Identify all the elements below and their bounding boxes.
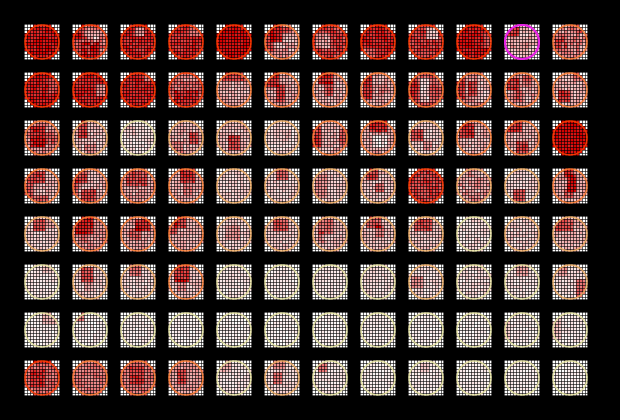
- heatmap-figure: [0, 0, 620, 420]
- tile-r2-c9: [408, 72, 444, 108]
- tile-r8-c11: [504, 360, 540, 396]
- tile-r1-c12: [552, 24, 588, 60]
- tile-r5-c7: [312, 216, 348, 252]
- tile-r4-c5: [216, 168, 252, 204]
- tile-r4-c6: [264, 168, 300, 204]
- tile-r4-c9: [408, 168, 444, 204]
- tile-r6-c11: [504, 264, 540, 300]
- tile-r6-c7: [312, 264, 348, 300]
- tile-r2-c12: [552, 72, 588, 108]
- tile-r8-c9: [408, 360, 444, 396]
- tile-r2-c7: [312, 72, 348, 108]
- tile-r3-c5: [216, 120, 252, 156]
- tile-r2-c5: [216, 72, 252, 108]
- tile-r6-c5: [216, 264, 252, 300]
- tile-r7-c2: [72, 312, 108, 348]
- tile-r5-c3: [120, 216, 156, 252]
- tile-r1-c1: [24, 24, 60, 60]
- tile-r4-c7: [312, 168, 348, 204]
- tile-r3-c4: [168, 120, 204, 156]
- tile-r4-c8: [360, 168, 396, 204]
- tile-r8-c1: [24, 360, 60, 396]
- tile-r3-c2: [72, 120, 108, 156]
- tile-r3-c10: [456, 120, 492, 156]
- tile-r8-c7: [312, 360, 348, 396]
- tile-r5-c11: [504, 216, 540, 252]
- tile-r2-c1: [24, 72, 60, 108]
- tile-r5-c10: [456, 216, 492, 252]
- tile-r1-c8: [360, 24, 396, 60]
- tile-r4-c12: [552, 168, 588, 204]
- highlighted-tile-r1-c11: [504, 24, 540, 60]
- tile-r7-c10: [456, 312, 492, 348]
- tile-r7-c4: [168, 312, 204, 348]
- tile-r7-c1: [24, 312, 60, 348]
- tile-r2-c3: [120, 72, 156, 108]
- tile-r6-c10: [456, 264, 492, 300]
- tile-r4-c4: [168, 168, 204, 204]
- tile-r3-c11: [504, 120, 540, 156]
- tile-r5-c2: [72, 216, 108, 252]
- tile-r2-c6: [264, 72, 300, 108]
- tile-r3-c8: [360, 120, 396, 156]
- tile-r3-c9: [408, 120, 444, 156]
- tile-r8-c5: [216, 360, 252, 396]
- tile-r8-c6: [264, 360, 300, 396]
- tile-r1-c9: [408, 24, 444, 60]
- tile-r8-c12: [552, 360, 588, 396]
- tile-r6-c4: [168, 264, 204, 300]
- tile-r1-c6: [264, 24, 300, 60]
- tile-r7-c8: [360, 312, 396, 348]
- tile-r1-c10: [456, 24, 492, 60]
- tile-r2-c10: [456, 72, 492, 108]
- tile-r5-c4: [168, 216, 204, 252]
- tile-r8-c10: [456, 360, 492, 396]
- tile-r1-c3: [120, 24, 156, 60]
- tile-r1-c5: [216, 24, 252, 60]
- tile-r6-c2: [72, 264, 108, 300]
- tile-r2-c4: [168, 72, 204, 108]
- tile-r4-c1: [24, 168, 60, 204]
- tile-r6-c3: [120, 264, 156, 300]
- tile-r5-c9: [408, 216, 444, 252]
- tile-r3-c3: [120, 120, 156, 156]
- tile-r2-c11: [504, 72, 540, 108]
- tile-r8-c2: [72, 360, 108, 396]
- tile-r7-c6: [264, 312, 300, 348]
- tile-r3-c7: [312, 120, 348, 156]
- tile-r6-c1: [24, 264, 60, 300]
- tile-r6-c8: [360, 264, 396, 300]
- tile-r5-c6: [264, 216, 300, 252]
- tile-r7-c12: [552, 312, 588, 348]
- tile-r5-c1: [24, 216, 60, 252]
- tile-r7-c9: [408, 312, 444, 348]
- tile-r6-c12: [552, 264, 588, 300]
- tile-r8-c4: [168, 360, 204, 396]
- tile-r4-c10: [456, 168, 492, 204]
- tile-r2-c2: [72, 72, 108, 108]
- tile-r4-c11: [504, 168, 540, 204]
- tile-r1-c2: [72, 24, 108, 60]
- tile-r1-c4: [168, 24, 204, 60]
- tile-r2-c8: [360, 72, 396, 108]
- tile-r8-c8: [360, 360, 396, 396]
- tile-r5-c12: [552, 216, 588, 252]
- tile-r4-c3: [120, 168, 156, 204]
- tile-r6-c9: [408, 264, 444, 300]
- tile-r7-c7: [312, 312, 348, 348]
- tile-r3-c6: [264, 120, 300, 156]
- tile-r7-c5: [216, 312, 252, 348]
- tile-r7-c3: [120, 312, 156, 348]
- tile-r5-c8: [360, 216, 396, 252]
- tile-r3-c1: [24, 120, 60, 156]
- tile-r6-c6: [264, 264, 300, 300]
- tile-r5-c5: [216, 216, 252, 252]
- tile-r8-c3: [120, 360, 156, 396]
- tile-r3-c12: [552, 120, 588, 156]
- tile-r7-c11: [504, 312, 540, 348]
- tile-r1-c7: [312, 24, 348, 60]
- tile-r4-c2: [72, 168, 108, 204]
